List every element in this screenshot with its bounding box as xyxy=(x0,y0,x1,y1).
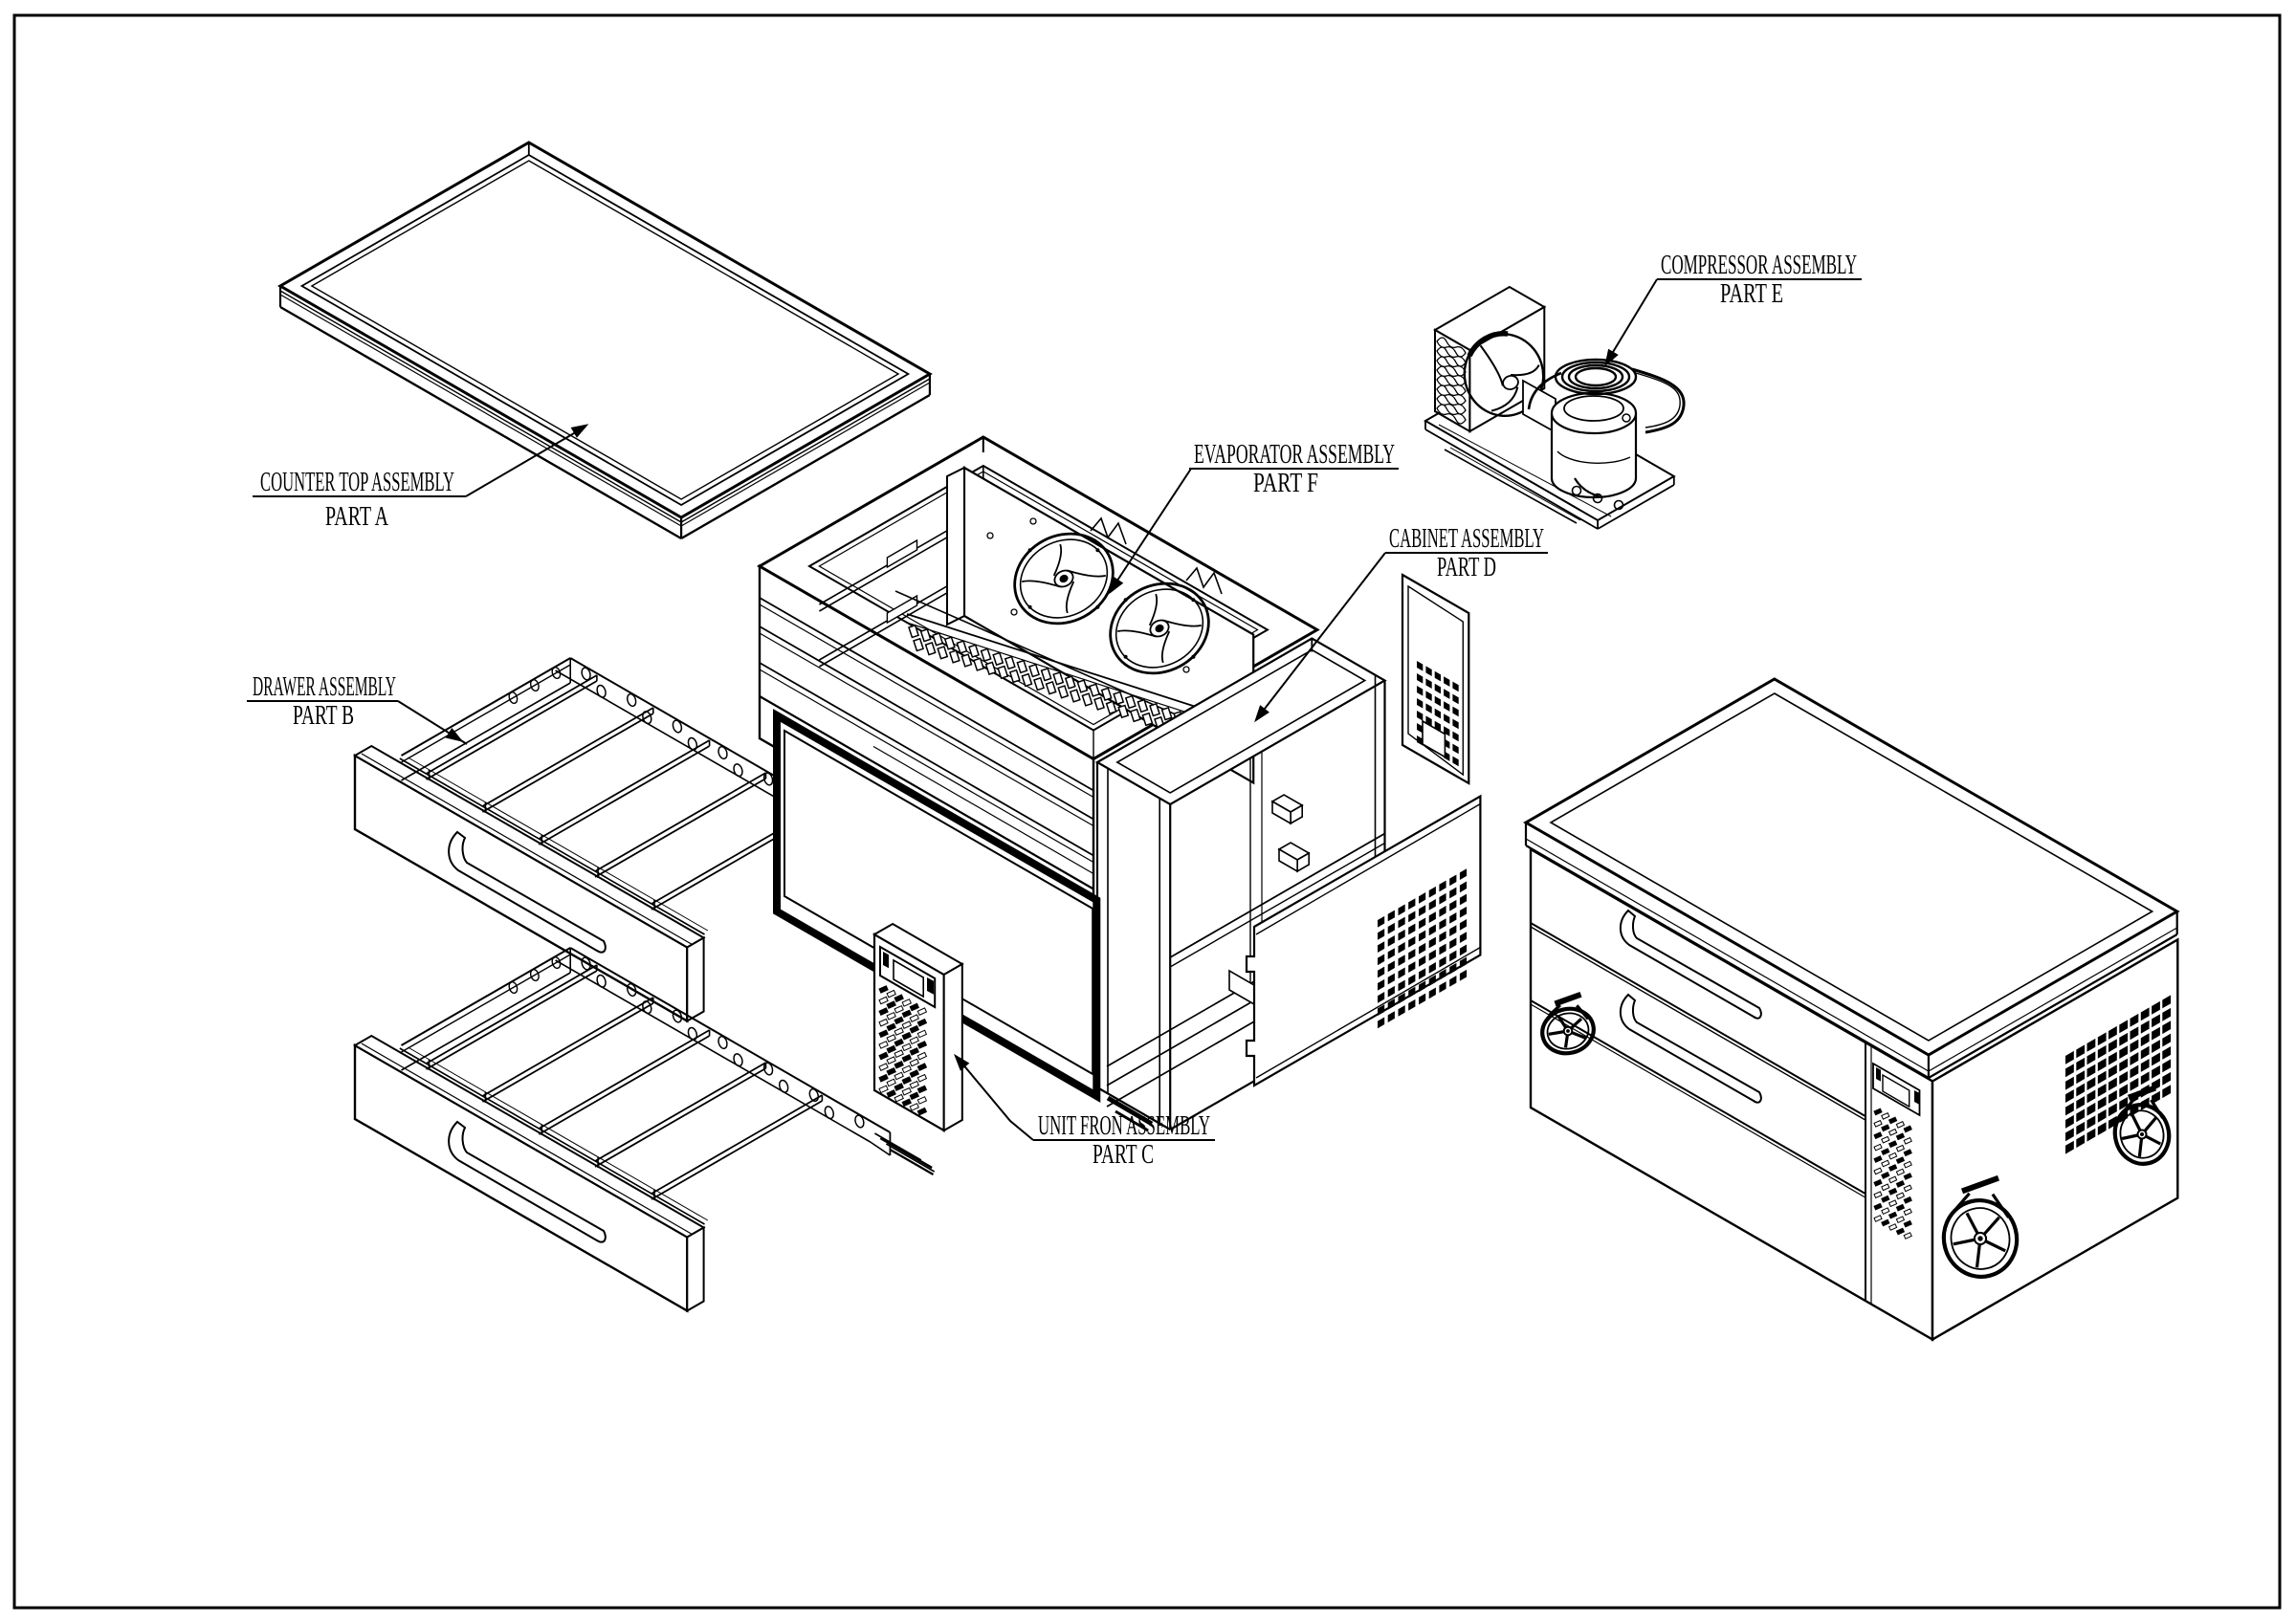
svg-text:COUNTER TOP ASSEMBLY: COUNTER TOP ASSEMBLY xyxy=(260,468,454,497)
svg-text:EVAPORATOR ASSEMBLY: EVAPORATOR ASSEMBLY xyxy=(1194,440,1395,470)
svg-text:COMPRESSOR ASSEMBLY: COMPRESSOR ASSEMBLY xyxy=(1661,251,1857,280)
svg-text:CABINET ASSEMBLY: CABINET ASSEMBLY xyxy=(1389,524,1544,554)
svg-text:PART B: PART B xyxy=(293,701,354,731)
svg-text:DRAWER ASSEMBLY: DRAWER ASSEMBLY xyxy=(253,672,396,702)
svg-text:UNIT FRON ASSEMBLY: UNIT FRON ASSEMBLY xyxy=(1038,1111,1210,1141)
svg-text:PART C: PART C xyxy=(1093,1140,1154,1170)
svg-text:PART D: PART D xyxy=(1437,553,1496,582)
svg-text:PART E: PART E xyxy=(1720,279,1783,309)
svg-text:PART A: PART A xyxy=(325,502,389,532)
svg-text:PART F: PART F xyxy=(1253,469,1318,498)
